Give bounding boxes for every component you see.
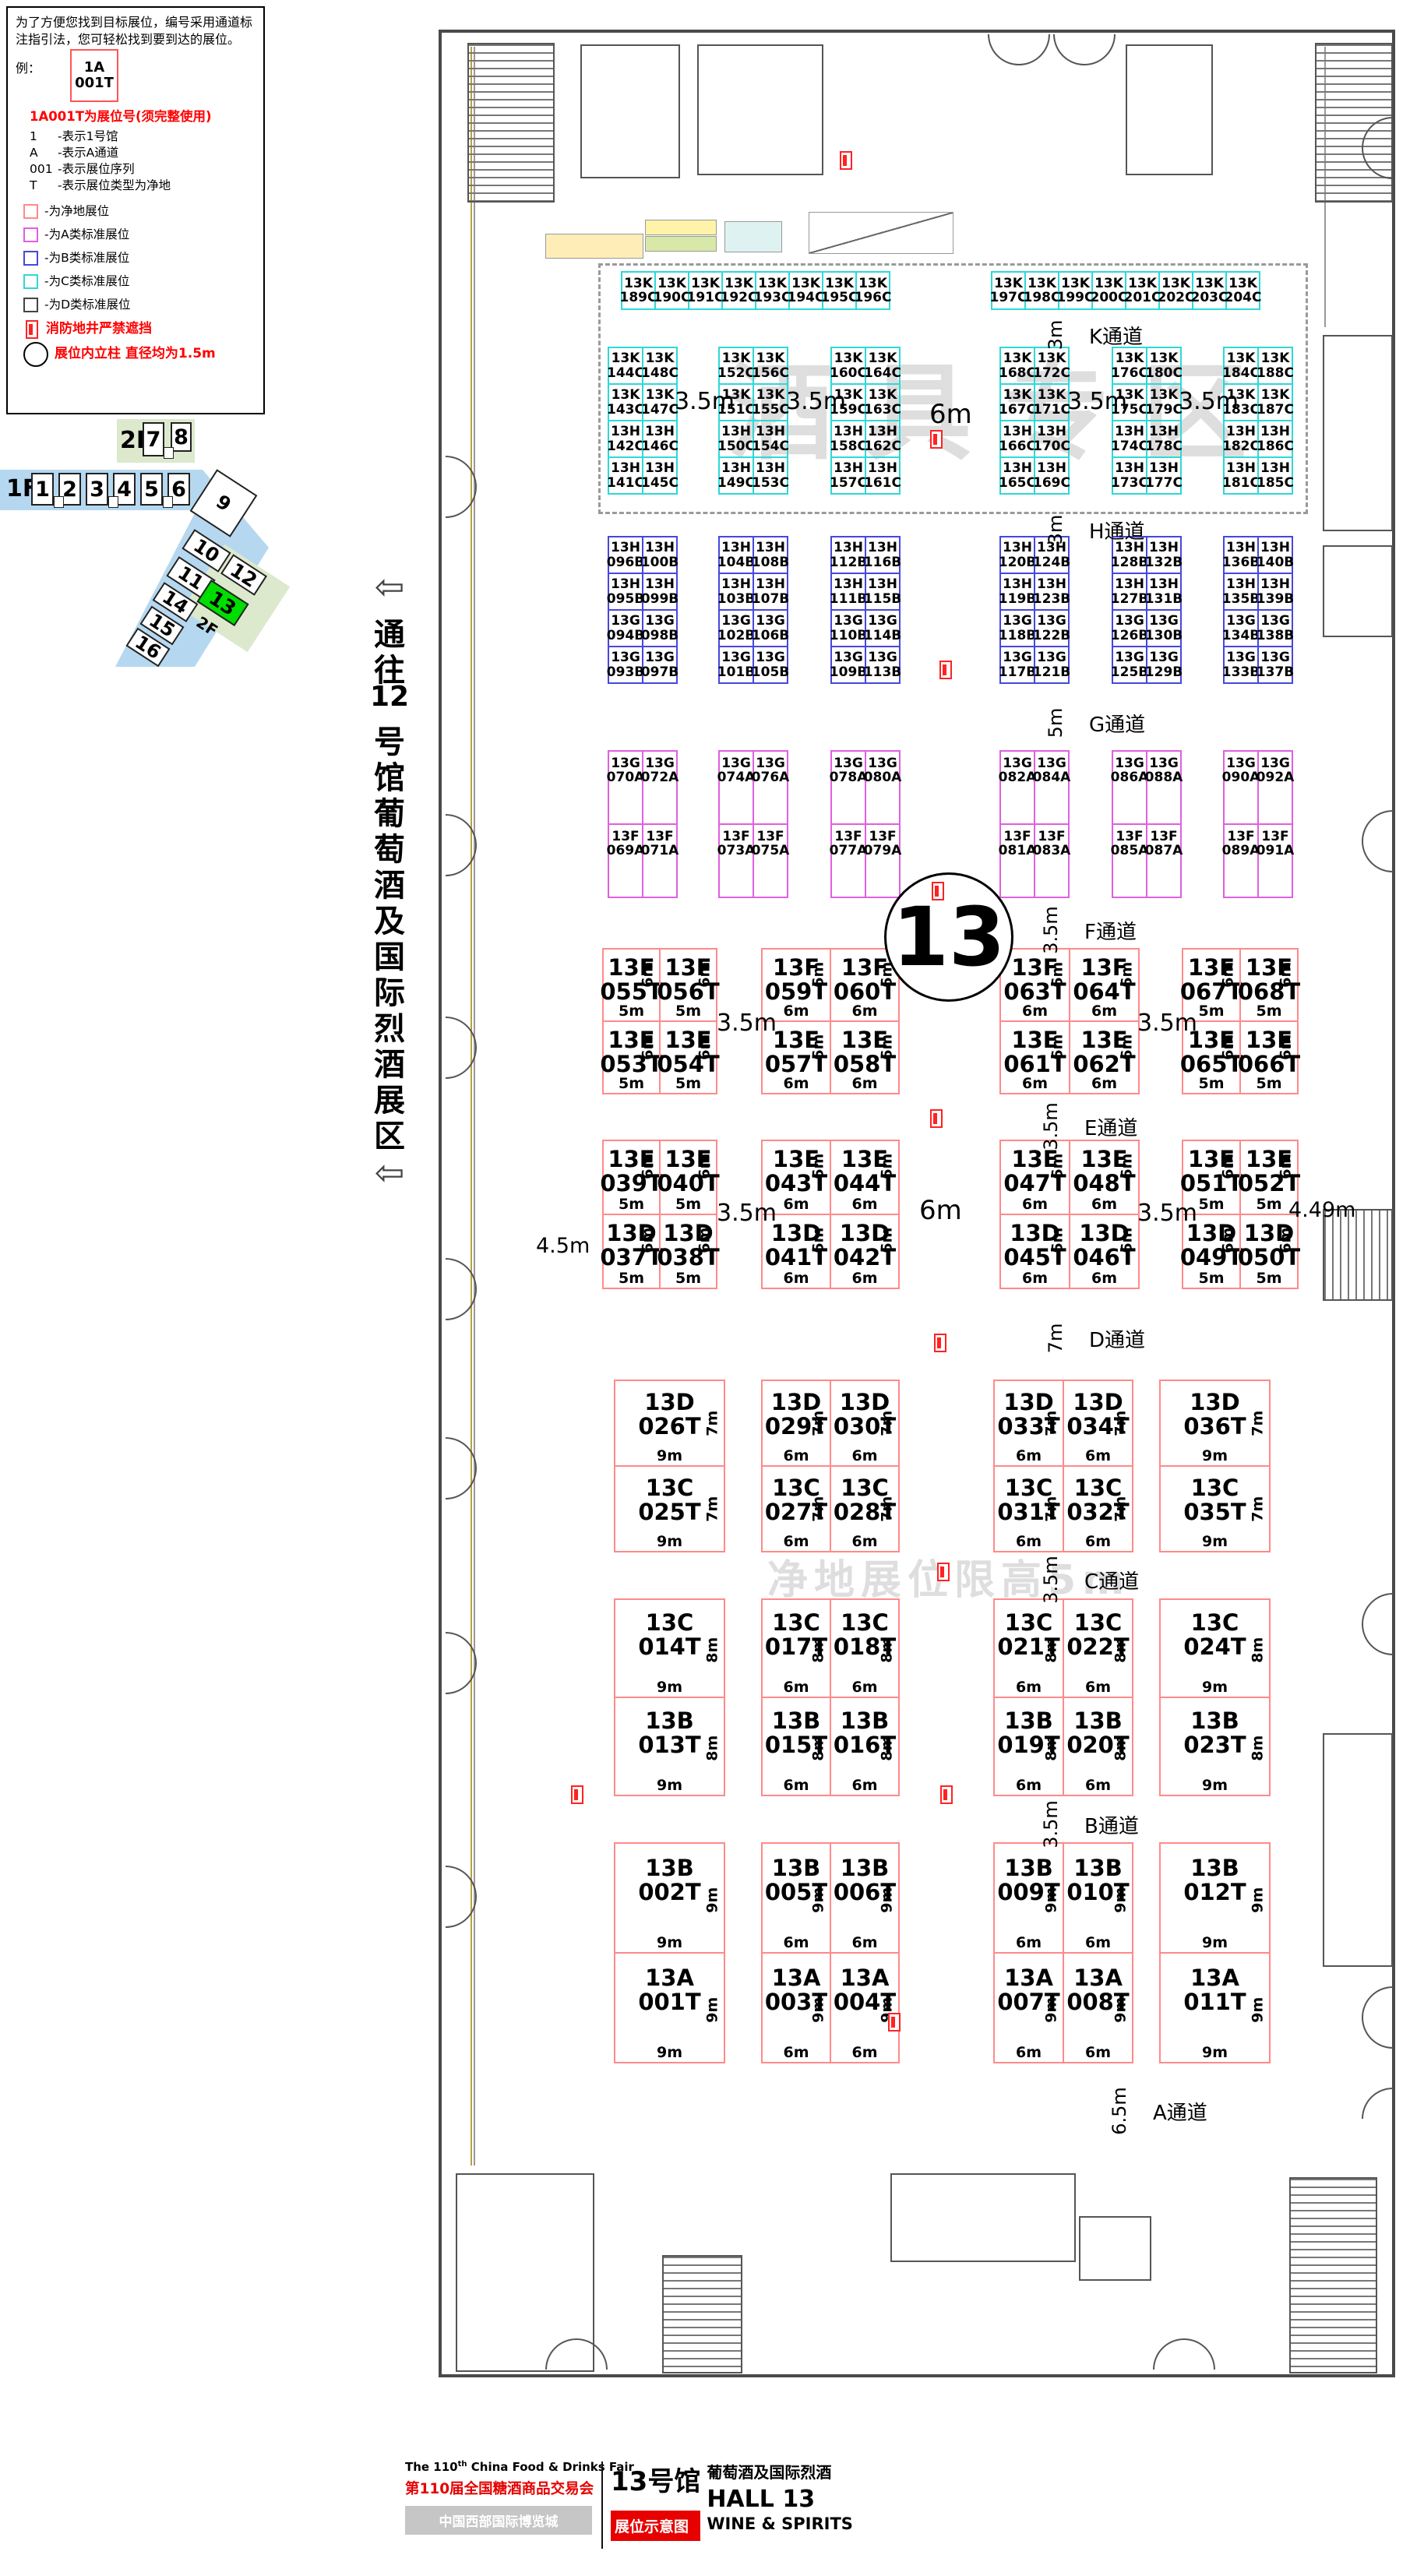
booth-13F-081A[interactable]: 13F081A — [999, 823, 1035, 898]
booth-13G-105B[interactable]: 13G105B — [753, 646, 788, 684]
minimap-hall-7[interactable]: 7 — [143, 422, 164, 456]
booth-13C-024T[interactable]: 13C024T8m9m — [1159, 1598, 1271, 1698]
minimap-hall-1[interactable]: 1 — [31, 473, 54, 506]
booth-13K-176C[interactable]: 13K176C — [1112, 347, 1147, 385]
booth-id-line: 13H — [834, 425, 863, 439]
booth-id-line: 197C — [990, 291, 1027, 305]
booth-13F-085A[interactable]: 13F085A — [1112, 823, 1147, 898]
booth-13K-201C[interactable]: 13K201C — [1125, 271, 1160, 310]
booth-width-label: 6m — [831, 1448, 898, 1464]
booth-id-line: 13C — [1191, 1476, 1239, 1500]
booth-depth-label: 6m — [879, 1030, 896, 1064]
booth-13H-108B[interactable]: 13H108B — [753, 536, 788, 574]
booth-13K-190C[interactable]: 13K190C — [654, 271, 689, 310]
booth-id-line: 13K — [646, 388, 675, 402]
booth-13G-113B[interactable]: 13G113B — [865, 646, 901, 684]
booth-13K-204C[interactable]: 13K204C — [1225, 271, 1260, 310]
booth-13K-164C[interactable]: 13K164C — [865, 347, 901, 385]
legend-code-key: T — [30, 178, 58, 194]
booth-depth-label: 6m — [697, 1223, 714, 1257]
booth-13F-069A[interactable]: 13F069A — [608, 823, 643, 898]
minimap-hall-8[interactable]: 8 — [171, 422, 192, 452]
booth-13K-199C[interactable]: 13K199C — [1058, 271, 1093, 310]
booth-id-line: 13K — [858, 277, 887, 291]
booth-id-line: 114B — [864, 629, 901, 643]
booth-id-line: 13G — [1149, 650, 1179, 664]
booth-13A-004T[interactable]: 13A004T9m6m — [830, 1952, 900, 2063]
booth-13E-058T[interactable]: 13E058T6m6m — [830, 1020, 900, 1094]
booth-13G-125B[interactable]: 13G125B — [1112, 646, 1147, 684]
footer-divider — [601, 2461, 603, 2549]
booth-13B-020T[interactable]: 13B020T8m6m — [1063, 1697, 1133, 1796]
booth-13B-009T[interactable]: 13B009T9m6m — [993, 1842, 1064, 1954]
booth-depth-label: 6m — [1221, 957, 1237, 992]
legend-code-value: -表示A通道 — [58, 146, 118, 160]
legend-code-key: 001 — [30, 161, 58, 178]
legend-code-value: -表示展位类型为净地 — [58, 178, 171, 192]
booth-13H-111B[interactable]: 13H111B — [830, 573, 866, 611]
booth-id-line: 134B — [1222, 629, 1260, 643]
booth-depth-label: 8m — [1044, 1633, 1060, 1667]
booth-13G-102B[interactable]: 13G102B — [718, 609, 754, 647]
booth-id-line: 157C — [830, 476, 867, 490]
booth-13G-106B[interactable]: 13G106B — [753, 609, 788, 647]
booth-13K-155C[interactable]: 13K155C — [753, 383, 788, 421]
booth-13D-037T[interactable]: 13D037T6m5m — [602, 1214, 661, 1289]
booth-13K-194C[interactable]: 13K194C — [788, 271, 823, 310]
booth-width-label: 6m — [1064, 1679, 1132, 1696]
booth-13C-032T[interactable]: 13C032T7m6m — [1063, 1465, 1133, 1552]
booth-13H-112B[interactable]: 13H112B — [830, 536, 866, 574]
booth-id-line: 13K — [1116, 351, 1144, 365]
booth-id-line: 181C — [1222, 476, 1260, 490]
booth-13A-011T[interactable]: 13A011T9m9m — [1159, 1952, 1271, 2063]
booth-13H-107B[interactable]: 13H107B — [753, 573, 788, 611]
booth-width-label: 5m — [1241, 1270, 1297, 1287]
booth-depth-label: 7m — [705, 1406, 721, 1440]
booth-13G-133B[interactable]: 13G133B — [1223, 646, 1259, 684]
booth-13G-110B[interactable]: 13G110B — [830, 609, 866, 647]
booth-13K-187C[interactable]: 13K187C — [1257, 383, 1293, 421]
booth-13C-021T[interactable]: 13C021T8m6m — [993, 1598, 1064, 1698]
booth-13C-035T[interactable]: 13C035T7m9m — [1159, 1465, 1271, 1552]
booth-id-line: 13K — [994, 277, 1023, 291]
booth-id-line: 13H — [834, 577, 863, 591]
booth-13C-027T[interactable]: 13C027T7m6m — [761, 1465, 831, 1552]
booth-13H-135B[interactable]: 13H135B — [1223, 573, 1259, 611]
booth-depth-label: 6m — [1050, 1030, 1066, 1064]
booth-13G-130B[interactable]: 13G130B — [1146, 609, 1182, 647]
booth-13D-038T[interactable]: 13D038T6m5m — [659, 1214, 717, 1289]
booth-13D-034T[interactable]: 13D034T7m6m — [1063, 1380, 1133, 1467]
booth-13D-050T[interactable]: 13D050T6m5m — [1239, 1214, 1299, 1289]
booth-13B-023T[interactable]: 13B023T8m9m — [1159, 1697, 1271, 1796]
booth-id-line: 092A — [1257, 770, 1295, 784]
booth-13K-171C[interactable]: 13K171C — [1034, 383, 1070, 421]
booth-id-line: 132B — [1145, 555, 1183, 569]
booth-id-line: 13F — [756, 830, 784, 844]
booth-depth-label: 6m — [640, 1149, 657, 1183]
booth-13G-117B[interactable]: 13G117B — [999, 646, 1035, 684]
booth-13H-100B[interactable]: 13H100B — [642, 536, 678, 574]
booth-13G-122B[interactable]: 13G122B — [1034, 609, 1070, 647]
booth-13G-134B[interactable]: 13G134B — [1223, 609, 1259, 647]
aisle-label-G: G通道 — [1089, 709, 1145, 738]
booth-depth-label: 6m — [811, 957, 827, 992]
example-booth: 1A 001T — [70, 49, 118, 102]
booth-id-line: 13K — [646, 351, 675, 365]
wall — [439, 2374, 1395, 2377]
booth-width-label: 6m — [831, 1778, 898, 1794]
booth-13B-012T[interactable]: 13B012T9m9m — [1159, 1842, 1271, 1954]
legend-class-item: -为净地展位 — [23, 203, 256, 220]
booth-13H-096B[interactable]: 13H096B — [608, 536, 643, 574]
booth-13K-189C[interactable]: 13K189C — [621, 271, 656, 310]
booth-13C-031T[interactable]: 13C031T7m6m — [993, 1465, 1064, 1552]
booth-depth-label: 9m — [1044, 1883, 1060, 1917]
booth-13C-018T[interactable]: 13C018T8m6m — [830, 1598, 900, 1698]
booth-width-label: 6m — [1064, 1534, 1132, 1550]
booth-13K-197C[interactable]: 13K197C — [991, 271, 1026, 310]
booth-id-line: 13C — [1074, 1611, 1123, 1635]
booth-id-line: 13G — [1260, 756, 1290, 770]
booth-13K-144C[interactable]: 13K144C — [608, 347, 643, 385]
booth-13E-054T[interactable]: 13E054T6m5m — [659, 1020, 717, 1094]
booth-13H-145C[interactable]: 13H145C — [642, 456, 678, 495]
booth-id-line: 13K — [1128, 277, 1157, 291]
booth-id-line: 182C — [1222, 439, 1260, 453]
booth-13F-068T[interactable]: 13F068T6m5m — [1239, 948, 1299, 1022]
booth-id-line: 108B — [752, 555, 789, 569]
booth-13A-007T[interactable]: 13A007T9m6m — [993, 1952, 1064, 2063]
booth-13G-074A[interactable]: 13G074A — [718, 750, 754, 825]
booth-id-line: 13K — [612, 351, 640, 365]
booth-13E-053T[interactable]: 13E053T6m5m — [602, 1020, 661, 1094]
booth-13G-088A[interactable]: 13G088A — [1146, 750, 1182, 825]
booth-13G-093B[interactable]: 13G093B — [608, 646, 643, 684]
booth-13H-157C[interactable]: 13H157C — [830, 456, 866, 495]
booth-13H-132B[interactable]: 13H132B — [1146, 536, 1182, 574]
booth-13H-103B[interactable]: 13H103B — [718, 573, 754, 611]
booth-13A-001T[interactable]: 13A001T9m9m — [614, 1952, 725, 2063]
booth-13B-019T[interactable]: 13B019T8m6m — [993, 1697, 1064, 1796]
booth-13H-099B[interactable]: 13H099B — [642, 573, 678, 611]
booth-13H-131B[interactable]: 13H131B — [1146, 573, 1182, 611]
booth-13H-120B[interactable]: 13H120B — [999, 536, 1035, 574]
booth-13B-002T[interactable]: 13B002T9m9m — [614, 1842, 725, 1954]
minimap-notch — [54, 496, 64, 508]
booth-13K-179C[interactable]: 13K179C — [1146, 383, 1182, 421]
booth-13K-184C[interactable]: 13K184C — [1223, 347, 1259, 385]
booth-13H-158C[interactable]: 13H158C — [830, 420, 866, 458]
booth-id-line: 13K — [1195, 277, 1224, 291]
booth-13H-149C[interactable]: 13H149C — [718, 456, 754, 495]
booth-13K-200C[interactable]: 13K200C — [1091, 271, 1126, 310]
booth-13G-072A[interactable]: 13G072A — [642, 750, 678, 825]
booth-13G-078A[interactable]: 13G078A — [830, 750, 866, 825]
booth-13D-030T[interactable]: 13D030T7m6m — [830, 1380, 900, 1467]
booth-depth-label: 6m — [1119, 957, 1136, 992]
booth-13E-048T[interactable]: 13E048T6m6m — [1069, 1140, 1140, 1215]
booth-13F-077A[interactable]: 13F077A — [830, 823, 866, 898]
booth-id-line: 13H — [1003, 541, 1032, 555]
booth-13E-066T[interactable]: 13E066T6m5m — [1239, 1020, 1299, 1094]
booth-13C-017T[interactable]: 13C017T8m6m — [761, 1598, 831, 1698]
booth-13K-192C[interactable]: 13K192C — [721, 271, 756, 310]
booth-13B-010T[interactable]: 13B010T9m6m — [1063, 1842, 1133, 1954]
booth-13H-141C[interactable]: 13H141C — [608, 456, 643, 495]
booth-13F-056T[interactable]: 13F056T6m5m — [659, 948, 717, 1022]
booth-13B-013T[interactable]: 13B013T8m9m — [614, 1697, 725, 1796]
booth-13K-167C[interactable]: 13K167C — [999, 383, 1035, 421]
booth-13G-090A[interactable]: 13G090A — [1223, 750, 1259, 825]
booth-depth-label: 6m — [811, 1030, 827, 1064]
booth-13F-083A[interactable]: 13F083A — [1034, 823, 1070, 898]
booth-13H-115B[interactable]: 13H115B — [865, 573, 901, 611]
booth-13D-046T[interactable]: 13D046T6m6m — [1069, 1214, 1140, 1289]
booth-13F-079A[interactable]: 13F079A — [865, 823, 901, 898]
booth-13H-161C[interactable]: 13H161C — [865, 456, 901, 495]
booth-13H-119B[interactable]: 13H119B — [999, 573, 1035, 611]
booth-13C-022T[interactable]: 13C022T8m6m — [1063, 1598, 1133, 1698]
booth-13K-147C[interactable]: 13K147C — [642, 383, 678, 421]
booth-depth-label: 8m — [879, 1731, 896, 1765]
booth-13F-055T[interactable]: 13F055T6m5m — [602, 948, 661, 1022]
booth-13H-169C[interactable]: 13H169C — [1034, 456, 1070, 495]
booth-13H-095B[interactable]: 13H095B — [608, 573, 643, 611]
booth-13H-173C[interactable]: 13H173C — [1112, 456, 1147, 495]
fixture — [645, 236, 717, 252]
distance-label: 3.5m — [1137, 1200, 1197, 1227]
booth-13K-143C[interactable]: 13K143C — [608, 383, 643, 421]
booth-13G-109B[interactable]: 13G109B — [830, 646, 866, 684]
booth-13F-091A[interactable]: 13F091A — [1257, 823, 1293, 898]
booth-id-line: 13H — [834, 541, 863, 555]
booth-13H-127B[interactable]: 13H127B — [1112, 573, 1147, 611]
booth-13D-026T[interactable]: 13D026T7m9m — [614, 1380, 725, 1467]
booth-id-line: 120B — [999, 555, 1036, 569]
booth-13E-039T[interactable]: 13E039T6m5m — [602, 1140, 661, 1215]
booth-13H-181C[interactable]: 13H181C — [1223, 456, 1259, 495]
booth-id-line: 154C — [752, 439, 789, 453]
booth-13G-138B[interactable]: 13G138B — [1257, 609, 1293, 647]
footer-left: The 110th China Food & Drinks Fair 第110届… — [405, 2460, 592, 2535]
booth-13B-016T[interactable]: 13B016T8m6m — [830, 1697, 900, 1796]
booth-13G-118B[interactable]: 13G118B — [999, 609, 1035, 647]
booth-13G-094B[interactable]: 13G094B — [608, 609, 643, 647]
minimap-hall-5[interactable]: 5 — [140, 473, 163, 506]
booth-13E-062T[interactable]: 13E062T6m6m — [1069, 1020, 1140, 1094]
booth-13H-186C[interactable]: 13H186C — [1257, 420, 1293, 458]
booth-13G-076A[interactable]: 13G076A — [753, 750, 788, 825]
booth-id-line: 167C — [999, 403, 1036, 417]
booth-id-line: 204C — [1225, 291, 1262, 305]
booth-13H-123B[interactable]: 13H123B — [1034, 573, 1070, 611]
booth-13A-008T[interactable]: 13A008T9m6m — [1063, 1952, 1133, 2063]
booth-id-line: 083A — [1033, 844, 1071, 858]
booth-width-label: 6m — [763, 1448, 830, 1464]
booth-id-line: 118B — [999, 629, 1036, 643]
booth-13K-195C[interactable]: 13K195C — [822, 271, 857, 310]
booth-13B-005T[interactable]: 13B005T9m6m — [761, 1842, 831, 1954]
booth-13H-177C[interactable]: 13H177C — [1146, 456, 1182, 495]
booth-13K-193C[interactable]: 13K193C — [755, 271, 790, 310]
booth-13G-129B[interactable]: 13G129B — [1146, 646, 1182, 684]
booth-13H-178C[interactable]: 13H178C — [1146, 420, 1182, 458]
booth-id-line: 149C — [717, 476, 755, 490]
booth-13H-185C[interactable]: 13H185C — [1257, 456, 1293, 495]
booth-13F-089A[interactable]: 13F089A — [1223, 823, 1259, 898]
booth-13F-073A[interactable]: 13F073A — [718, 823, 754, 898]
booth-13H-139B[interactable]: 13H139B — [1257, 573, 1293, 611]
booth-13K-148C[interactable]: 13K148C — [642, 347, 678, 385]
booth-13G-126B[interactable]: 13G126B — [1112, 609, 1147, 647]
booth-id-line: 13H — [1037, 425, 1066, 439]
booth-13K-152C[interactable]: 13K152C — [718, 347, 754, 385]
booth-13H-174C[interactable]: 13H174C — [1112, 420, 1147, 458]
booth-13F-071A[interactable]: 13F071A — [642, 823, 678, 898]
booth-13D-042T[interactable]: 13D042T6m6m — [830, 1214, 900, 1289]
booth-13D-045T[interactable]: 13D045T6m6m — [999, 1214, 1070, 1289]
booth-id-line: 173C — [1111, 476, 1148, 490]
booth-13D-033T[interactable]: 13D033T7m6m — [993, 1380, 1064, 1467]
booth-width-label: 6m — [1070, 1003, 1138, 1020]
booth-width-label: 9m — [615, 1534, 724, 1550]
booth-depth-label: 6m — [640, 1030, 657, 1064]
booth-id-line: 13K — [1094, 277, 1123, 291]
booth-13G-097B[interactable]: 13G097B — [642, 646, 678, 684]
booth-id-line: 13H — [1003, 425, 1032, 439]
booth-13K-163C[interactable]: 13K163C — [865, 383, 901, 421]
booth-13H-170C[interactable]: 13H170C — [1034, 420, 1070, 458]
booth-13H-142C[interactable]: 13H142C — [608, 420, 643, 458]
booth-13G-121B[interactable]: 13G121B — [1034, 646, 1070, 684]
aisle-width-B: 3.5m — [1040, 1795, 1062, 1853]
booth-13K-156C[interactable]: 13K156C — [753, 347, 788, 385]
booth-13F-063T[interactable]: 13F063T6m6m — [999, 948, 1070, 1022]
booth-13D-029T[interactable]: 13D029T7m6m — [761, 1380, 831, 1467]
door-arc — [1053, 34, 1084, 65]
wall — [439, 30, 442, 2377]
booth-id-line: 13H — [645, 541, 675, 555]
example-booth-line2: 001T — [75, 76, 114, 91]
booth-13H-146C[interactable]: 13H146C — [642, 420, 678, 458]
booth-13G-070A[interactable]: 13G070A — [608, 750, 643, 825]
booth-13G-092A[interactable]: 13G092A — [1257, 750, 1293, 825]
booth-13K-196C[interactable]: 13K196C — [855, 271, 890, 310]
booth-13H-116B[interactable]: 13H116B — [865, 536, 901, 574]
door-arc — [1019, 34, 1050, 65]
booth-13H-162C[interactable]: 13H162C — [865, 420, 901, 458]
booth-width-label: 6m — [995, 2045, 1063, 2061]
booth-depth-label: 6m — [1119, 1223, 1136, 1257]
booth-13B-006T[interactable]: 13B006T9m6m — [830, 1842, 900, 1954]
booth-id-line: 121B — [1033, 665, 1070, 679]
booth-13H-136B[interactable]: 13H136B — [1223, 536, 1259, 574]
distance-label: 3.5m — [675, 388, 735, 415]
fire-well-icon — [937, 1563, 950, 1581]
door-arc — [1362, 810, 1393, 841]
legend-code-value: -表示1号馆 — [58, 129, 118, 143]
booth-13H-182C[interactable]: 13H182C — [1223, 420, 1259, 458]
booth-13G-084A[interactable]: 13G084A — [1034, 750, 1070, 825]
floorplan-page: 为了方便您找到目标展位，编号采用通道标注指引法，您可轻松找到要到达的展位。 例：… — [0, 0, 1424, 2576]
booth-id-line: 188C — [1257, 366, 1294, 380]
booth-13E-044T[interactable]: 13E044T6m6m — [830, 1140, 900, 1215]
booth-13D-036T[interactable]: 13D036T7m9m — [1159, 1380, 1271, 1467]
booth-13G-101B[interactable]: 13G101B — [718, 646, 754, 684]
booth-width-label: 6m — [1064, 1778, 1132, 1794]
booth-13K-180C[interactable]: 13K180C — [1146, 347, 1182, 385]
booth-13G-098B[interactable]: 13G098B — [642, 609, 678, 647]
legend-class-label: -为净地展位 — [44, 203, 109, 220]
stairs — [662, 2255, 742, 2373]
minimap-hall-3[interactable]: 3 — [86, 473, 108, 506]
booth-width-label: 9m — [1161, 1448, 1269, 1464]
booth-id-line: 199C — [1057, 291, 1094, 305]
booth-13C-028T[interactable]: 13C028T7m6m — [830, 1465, 900, 1552]
booth-13H-150C[interactable]: 13H150C — [718, 420, 754, 458]
booth-13H-165C[interactable]: 13H165C — [999, 456, 1035, 495]
booth-id-line: 13B — [1190, 1856, 1239, 1880]
booth-13H-140B[interactable]: 13H140B — [1257, 536, 1293, 574]
booth-13A-003T[interactable]: 13A003T9m6m — [761, 1952, 831, 2063]
booth-13G-080A[interactable]: 13G080A — [865, 750, 901, 825]
booth-13K-202C[interactable]: 13K202C — [1158, 271, 1193, 310]
booth-width-label: 6m — [831, 1196, 898, 1213]
room-block — [890, 2173, 1076, 2262]
booth-13K-203C[interactable]: 13K203C — [1192, 271, 1227, 310]
booth-13C-025T[interactable]: 13C025T7m9m — [614, 1465, 725, 1552]
booth-id-line: 13G — [645, 650, 675, 664]
booth-13K-188C[interactable]: 13K188C — [1257, 347, 1293, 385]
booth-13H-153C[interactable]: 13H153C — [753, 456, 788, 495]
booth-13C-014T[interactable]: 13C014T8m9m — [614, 1598, 725, 1698]
booth-id-line: 13H — [1226, 541, 1256, 555]
booth-id-line: 194C — [788, 291, 825, 305]
booth-13K-160C[interactable]: 13K160C — [830, 347, 866, 385]
booth-13F-075A[interactable]: 13F075A — [753, 823, 788, 898]
booth-id-line: 13K — [691, 277, 720, 291]
booth-id-line: 13K — [834, 351, 863, 365]
booth-width-label: 5m — [604, 1196, 659, 1213]
booth-13K-168C[interactable]: 13K168C — [999, 347, 1035, 385]
booth-id-line: 13H — [1037, 461, 1066, 475]
booth-13G-114B[interactable]: 13G114B — [865, 609, 901, 647]
booth-13G-086A[interactable]: 13G086A — [1112, 750, 1147, 825]
booth-id-line: 014T — [638, 1635, 700, 1659]
booth-13K-198C[interactable]: 13K198C — [1024, 271, 1059, 310]
booth-13B-015T[interactable]: 13B015T8m6m — [761, 1697, 831, 1796]
booth-13G-137B[interactable]: 13G137B — [1257, 646, 1293, 684]
booth-13H-104B[interactable]: 13H104B — [718, 536, 754, 574]
booth-13E-061T[interactable]: 13E061T6m6m — [999, 1020, 1070, 1094]
booth-id-line: 079A — [864, 844, 902, 858]
booth-13H-166C[interactable]: 13H166C — [999, 420, 1035, 458]
booth-13K-191C[interactable]: 13K191C — [688, 271, 723, 310]
booth-13G-082A[interactable]: 13G082A — [999, 750, 1035, 825]
booth-depth-label: 8m — [1250, 1731, 1267, 1765]
booth-id-line: 13B — [645, 1709, 693, 1733]
booth-13H-154C[interactable]: 13H154C — [753, 420, 788, 458]
booth-id-line: 13H — [611, 425, 640, 439]
booth-id-line: 13G — [1260, 650, 1290, 664]
door-arc — [446, 1017, 477, 1048]
booth-13F-064T[interactable]: 13F064T6m6m — [1069, 948, 1140, 1022]
booth-depth-label: 6m — [1278, 1149, 1295, 1183]
booth-13F-087A[interactable]: 13F087A — [1146, 823, 1182, 898]
booth-13E-040T[interactable]: 13E040T6m5m — [659, 1140, 717, 1215]
